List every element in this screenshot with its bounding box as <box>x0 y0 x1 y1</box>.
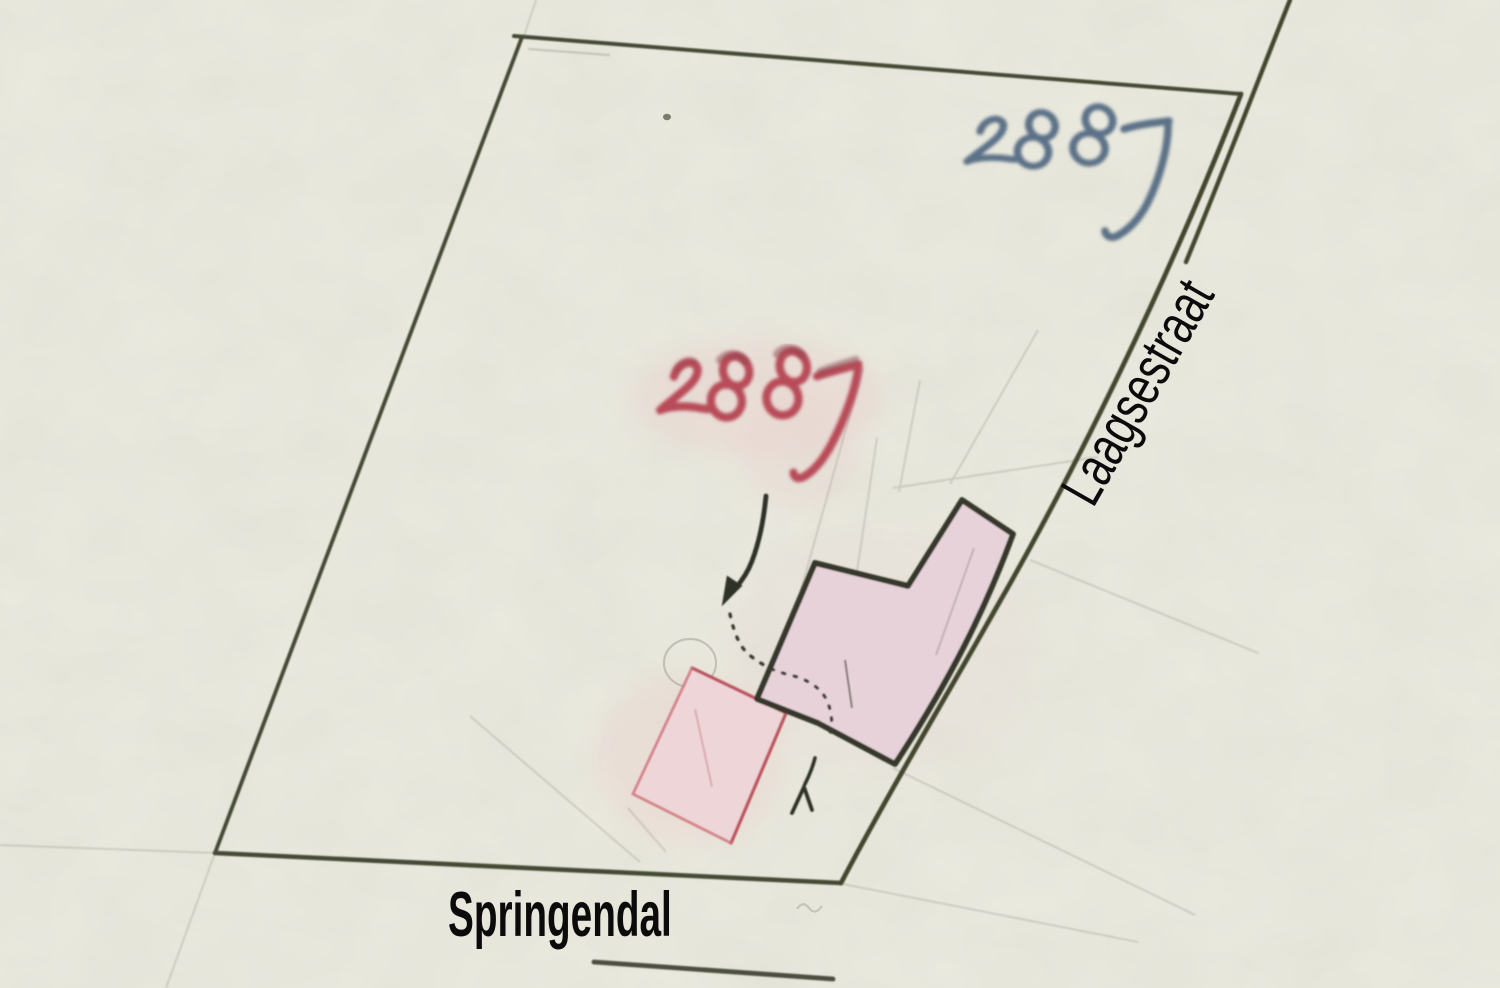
svg-text:Springendal: Springendal <box>448 881 672 951</box>
